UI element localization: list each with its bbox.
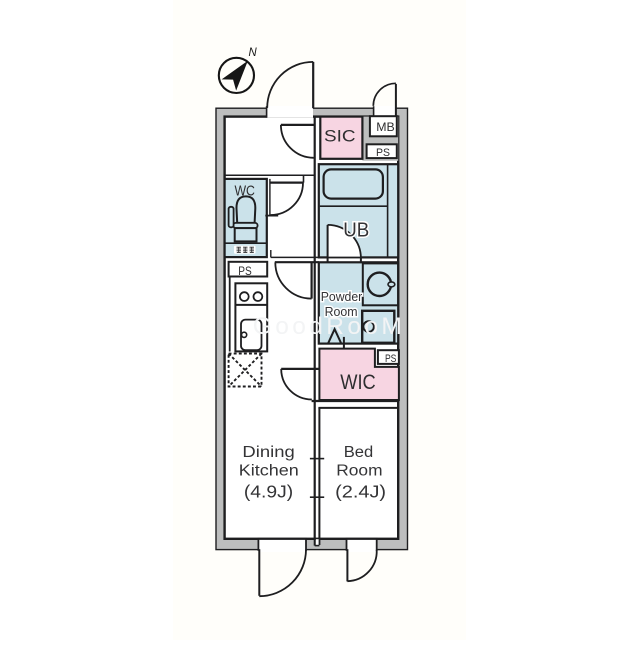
svg-text:MB: MB: [376, 121, 395, 134]
svg-text:UB: UB: [343, 218, 369, 241]
svg-text:Dining: Dining: [242, 444, 294, 461]
svg-text:PS: PS: [385, 353, 397, 365]
svg-text:GoodRooM: GoodRooM: [253, 313, 406, 340]
svg-text:SIC: SIC: [324, 127, 356, 146]
svg-text:PS: PS: [376, 147, 390, 159]
svg-text:Room: Room: [336, 463, 382, 480]
svg-text:PS: PS: [238, 264, 252, 278]
svg-text:Powder: Powder: [321, 289, 363, 304]
svg-text:(2.4J): (2.4J): [335, 482, 386, 502]
svg-text:WIC: WIC: [340, 370, 376, 394]
svg-text:Kitchen: Kitchen: [239, 463, 299, 480]
svg-text:Bed: Bed: [344, 444, 374, 461]
svg-text:N: N: [249, 45, 257, 59]
svg-text:(4.9J): (4.9J): [244, 482, 293, 502]
